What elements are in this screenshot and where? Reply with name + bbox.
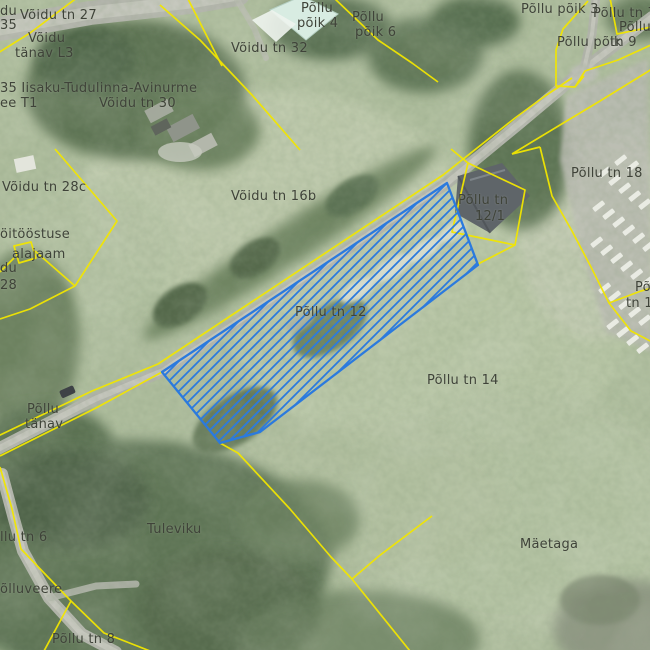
aerial-map-image [0, 0, 650, 650]
map-canvas[interactable]: du35Võidu tn 27Võidutänav L335 Iisaku-Tu… [0, 0, 650, 650]
